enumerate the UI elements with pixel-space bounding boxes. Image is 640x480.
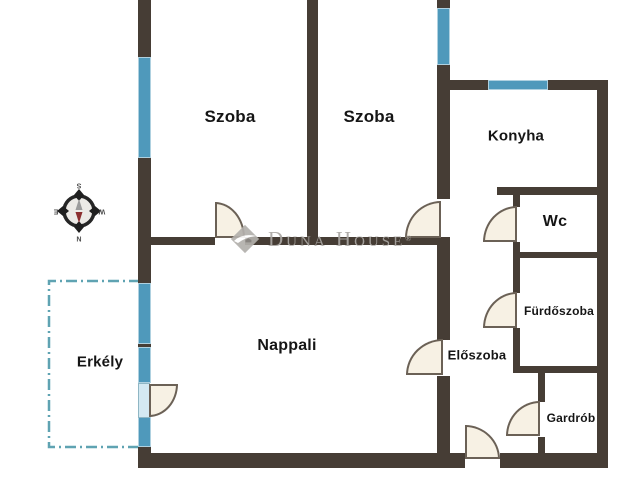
compass-letter-west: W — [99, 208, 106, 215]
wall-left-top — [138, 0, 151, 57]
wall-konyha-bottom — [497, 187, 597, 195]
room-label-szoba2: Szoba — [343, 107, 394, 127]
compass-letter-east: E — [54, 208, 59, 215]
wall-konyha-left — [437, 64, 450, 199]
wall-eloszoba-left-lower — [437, 376, 450, 453]
room-label-szoba1: Szoba — [204, 107, 255, 127]
window-nappali-upper — [138, 283, 151, 344]
window-nappali-lower — [138, 417, 151, 447]
wall-furdo-left-bottom — [513, 328, 520, 368]
wall-gardrob-left-bottom — [538, 437, 545, 454]
wall-konyha-top-left — [450, 80, 488, 90]
watermark-registered-mark: ® — [405, 234, 411, 244]
wall-konyha-top-right — [548, 80, 597, 90]
compass: S W N E — [53, 178, 105, 242]
wall-furdo-gardrob-divider — [513, 366, 597, 373]
window-nappali-mid — [138, 347, 151, 383]
room-label-nappali: Nappali — [257, 337, 316, 355]
wall-bottom-left — [138, 453, 465, 468]
room-label-erkely: Erkély — [77, 354, 123, 371]
compass-letter-south: S — [77, 182, 82, 189]
floor-plan-canvas: Szoba Szoba Konyha Wc Fürdőszoba Előszob… — [0, 0, 640, 480]
wall-furdo-left-top — [513, 258, 520, 293]
room-label-konyha: Konyha — [488, 128, 544, 145]
room-label-gardrob: Gardrób — [547, 411, 596, 425]
wall-eloszoba-left-upper — [437, 237, 450, 340]
compass-letter-north: N — [76, 235, 81, 242]
wall-left-mid — [138, 157, 151, 283]
duna-house-logo-icon — [228, 222, 262, 256]
room-label-eloszoba: Előszoba — [448, 348, 507, 363]
wall-right-outer — [597, 80, 608, 468]
watermark-brand-text: Duna House — [268, 224, 405, 254]
wall-wc-furdo-divider — [513, 252, 597, 258]
wall-gardrob-left-top — [538, 373, 545, 402]
wall-bottom-right — [500, 453, 608, 468]
window-szoba1-left — [138, 57, 151, 158]
room-label-furdoszoba: Fürdőszoba — [524, 304, 594, 318]
wall-szoba-divider — [307, 0, 318, 245]
window-konyha-top — [488, 80, 548, 90]
duna-house-watermark: Duna House ® — [228, 222, 411, 256]
window-divider — [138, 344, 151, 347]
window-szoba2-top — [437, 8, 450, 65]
room-label-wc: Wc — [543, 213, 567, 231]
wall-szoba1-nappali-left — [138, 237, 215, 245]
